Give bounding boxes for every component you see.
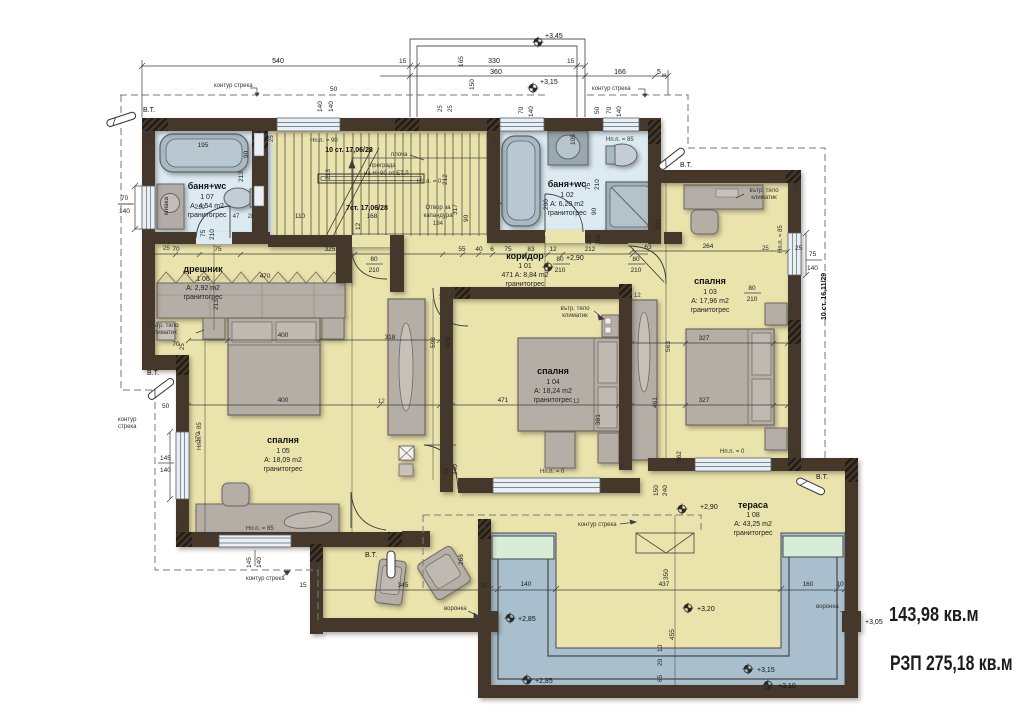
svg-text:стрека: стрека (118, 424, 137, 430)
svg-text:12: 12 (450, 293, 457, 299)
svg-text:75: 75 (809, 251, 817, 258)
svg-text:коридор: коридор (506, 251, 544, 261)
svg-text:20: 20 (657, 658, 664, 666)
svg-text:+3,45: +3,45 (545, 33, 563, 40)
svg-text:471 A: 8,84 m2: 471 A: 8,84 m2 (501, 272, 548, 279)
svg-text:преграда: преграда (370, 163, 396, 169)
svg-text:1 01: 1 01 (518, 263, 532, 270)
svg-text:A: 18,09 m2: A: 18,09 m2 (264, 457, 302, 464)
svg-text:+3,20: +3,20 (697, 606, 715, 613)
svg-text:25: 25 (794, 183, 800, 190)
svg-text:1 04: 1 04 (546, 379, 560, 386)
svg-text:150: 150 (469, 79, 476, 90)
svg-text:80: 80 (370, 256, 378, 263)
svg-text:55: 55 (458, 246, 466, 253)
svg-text:50: 50 (162, 403, 170, 410)
svg-text:гранитогрес: гранитогрес (734, 530, 773, 537)
svg-text:200: 200 (543, 199, 550, 210)
svg-text:220: 220 (195, 205, 206, 211)
svg-text:213: 213 (213, 299, 220, 310)
svg-text:контур стрека: контур стрека (592, 86, 631, 92)
svg-text:210: 210 (631, 267, 642, 274)
svg-text:12: 12 (573, 399, 580, 405)
svg-text:75: 75 (443, 467, 450, 475)
svg-text:Нп.п. = 0: Нп.п. = 0 (417, 179, 442, 185)
svg-text:140: 140 (616, 106, 623, 117)
svg-text:210: 210 (747, 296, 758, 303)
svg-text:75: 75 (214, 246, 222, 253)
svg-text:воронка: воронка (444, 606, 467, 612)
svg-text:гранитогрес: гранитогрес (264, 466, 303, 473)
svg-text:+2,85: +2,85 (535, 678, 553, 685)
svg-text:25: 25 (438, 105, 444, 112)
svg-text:28: 28 (248, 214, 255, 220)
svg-text:429: 429 (445, 337, 452, 348)
svg-text:12: 12 (355, 222, 362, 230)
svg-text:25: 25 (792, 451, 799, 457)
svg-text:45: 45 (482, 523, 488, 530)
svg-text:25: 25 (180, 343, 186, 350)
svg-text:12: 12 (378, 399, 385, 405)
svg-text:1 02: 1 02 (560, 192, 574, 199)
svg-text:+2,85: +2,85 (518, 616, 536, 623)
svg-text:баня+wc: баня+wc (188, 181, 227, 191)
svg-text:168: 168 (367, 213, 378, 220)
svg-text:330: 330 (488, 58, 500, 65)
svg-text:598: 598 (430, 337, 437, 348)
svg-text:461: 461 (652, 397, 659, 408)
svg-text:вътр. тяло: вътр. тяло (749, 188, 779, 194)
svg-text:Нп.п. = 85: Нп.п. = 85 (778, 225, 784, 253)
svg-text:195: 195 (198, 142, 209, 149)
svg-text:75: 75 (504, 246, 512, 253)
svg-text:дрешник: дрешник (183, 264, 223, 274)
svg-text:470: 470 (260, 273, 271, 280)
svg-text:160: 160 (803, 581, 814, 588)
svg-text:15: 15 (567, 58, 575, 65)
svg-text:плоча: плоча (391, 152, 408, 158)
svg-text:105: 105 (570, 134, 577, 145)
svg-text:A: 18,24 m2: A: 18,24 m2 (534, 388, 572, 395)
svg-text:A: 6,20 m2: A: 6,20 m2 (550, 201, 584, 208)
svg-text:1 05: 1 05 (276, 448, 290, 455)
svg-text:Нп.п. = 0: Нп.п. = 0 (540, 469, 565, 475)
svg-text:90: 90 (591, 207, 598, 215)
svg-text:212: 212 (585, 246, 596, 253)
svg-text:вътр. тяло: вътр. тяло (149, 323, 179, 329)
svg-text:83: 83 (527, 246, 535, 253)
svg-text:70: 70 (606, 106, 613, 114)
svg-text:В.Т.: В.Т. (147, 370, 159, 377)
svg-text:266: 266 (458, 554, 465, 565)
svg-text:Нп.п. = 85: Нп.п. = 85 (606, 137, 634, 143)
svg-text:165: 165 (458, 56, 465, 67)
svg-text:+2,90: +2,90 (566, 255, 584, 262)
svg-text:тераса: тераса (738, 500, 769, 510)
svg-text:400: 400 (278, 332, 289, 339)
svg-text:+3,15: +3,15 (540, 79, 558, 86)
svg-text:140: 140 (528, 106, 535, 117)
svg-text:гранитогрес: гранитогрес (506, 281, 545, 288)
svg-text:25: 25 (762, 246, 769, 252)
svg-text:47: 47 (233, 214, 240, 220)
svg-text:В.Т.: В.Т. (365, 552, 377, 559)
svg-text:гранитогрес: гранитогрес (188, 212, 227, 219)
svg-text:400: 400 (278, 397, 289, 404)
svg-text:контур стрека: контур стрека (246, 576, 285, 582)
svg-text:140: 140 (328, 101, 335, 112)
svg-text:+3,15: +3,15 (757, 667, 775, 674)
svg-text:102: 102 (655, 219, 662, 230)
svg-text:140: 140 (521, 581, 532, 588)
svg-text:контур стрека: контур стрека (214, 83, 253, 89)
svg-text:Нп.п. = 85: Нп.п. = 85 (197, 422, 203, 450)
svg-text:143,98 кв.м: 143,98 кв.м (889, 602, 979, 625)
svg-text:5: 5 (657, 69, 661, 76)
svg-text:25: 25 (146, 133, 152, 140)
svg-text:317: 317 (452, 204, 459, 215)
svg-text:10 ст. 17,06/28: 10 ст. 17,06/28 (325, 147, 373, 154)
svg-text:вътр. тяло: вътр. тяло (560, 306, 590, 312)
svg-text:гранитогрес: гранитогрес (548, 210, 587, 217)
svg-text:+3,05: +3,05 (865, 619, 883, 626)
svg-text:90: 90 (243, 150, 250, 158)
svg-text:381: 381 (595, 414, 602, 425)
svg-text:455: 455 (669, 629, 676, 640)
svg-text:210: 210 (209, 229, 216, 240)
svg-text:Нп.п. = 0: Нп.п. = 0 (720, 449, 745, 455)
svg-text:210: 210 (555, 267, 566, 274)
svg-text:контур: контур (118, 417, 137, 423)
svg-text:145: 145 (246, 557, 253, 568)
svg-text:80: 80 (632, 256, 640, 263)
svg-text:70: 70 (172, 246, 180, 253)
svg-text:45: 45 (620, 463, 626, 470)
svg-text:437: 437 (659, 581, 670, 588)
svg-text:спалня: спалня (267, 435, 299, 445)
svg-text:212: 212 (442, 174, 449, 185)
svg-text:гранитогрес: гранитогрес (691, 307, 730, 314)
svg-text:345: 345 (398, 582, 409, 589)
svg-text:90: 90 (463, 214, 470, 222)
svg-text:A: 2,92 m2: A: 2,92 m2 (186, 285, 220, 292)
svg-text:360: 360 (490, 69, 502, 76)
svg-text:мивка: мивка (163, 196, 170, 215)
svg-text:гранитогрес: гранитогрес (534, 397, 573, 404)
svg-text:10: 10 (657, 644, 664, 652)
svg-text:15: 15 (299, 582, 307, 589)
svg-text:12: 12 (440, 293, 446, 300)
svg-text:362: 362 (676, 451, 683, 462)
svg-text:63: 63 (644, 244, 652, 251)
svg-text:+2,90: +2,90 (700, 504, 718, 511)
svg-text:Нп.п. = 85: Нп.п. = 85 (246, 526, 274, 532)
svg-text:563: 563 (665, 341, 672, 352)
svg-text:50: 50 (594, 106, 601, 114)
svg-text:6: 6 (490, 246, 494, 253)
svg-text:на Н=90 от ЕТ.Л: на Н=90 от ЕТ.Л (364, 171, 409, 177)
svg-text:Отвор за: Отвор за (426, 205, 452, 211)
svg-text:25: 25 (448, 105, 454, 112)
svg-text:240: 240 (662, 485, 669, 496)
svg-text:климатик: климатик (562, 313, 588, 319)
svg-text:25: 25 (269, 135, 275, 142)
svg-text:климатик: климатик (751, 195, 777, 201)
svg-text:1 07: 1 07 (200, 194, 214, 201)
svg-text:Нп.п. = 90: Нп.п. = 90 (310, 138, 338, 144)
svg-text:150: 150 (653, 485, 660, 496)
svg-text:12: 12 (549, 246, 557, 253)
svg-text:350: 350 (663, 569, 670, 580)
svg-text:213: 213 (238, 171, 245, 182)
svg-text:40: 40 (475, 246, 483, 253)
svg-text:12: 12 (634, 293, 641, 299)
svg-text:140: 140 (119, 208, 130, 215)
svg-text:140: 140 (160, 467, 171, 474)
svg-text:A: 43,25 m2: A: 43,25 m2 (734, 521, 772, 528)
svg-text:140: 140 (256, 557, 263, 568)
svg-text:102: 102 (595, 234, 602, 245)
svg-text:80: 80 (556, 256, 564, 263)
svg-text:70: 70 (121, 195, 129, 202)
svg-text:140: 140 (317, 101, 324, 112)
svg-text:540: 540 (272, 58, 284, 65)
svg-text:баня+wc: баня+wc (548, 179, 587, 189)
svg-text:110: 110 (295, 213, 306, 220)
svg-text:70: 70 (172, 341, 180, 348)
svg-text:25: 25 (492, 135, 498, 142)
svg-text:75: 75 (200, 229, 207, 237)
svg-text:210: 210 (369, 267, 380, 274)
svg-text:25: 25 (655, 133, 661, 140)
svg-text:10 ст. 16,11/29: 10 ст. 16,11/29 (821, 273, 828, 320)
svg-text:184: 184 (433, 221, 444, 227)
svg-text:102: 102 (586, 234, 593, 245)
svg-text:327: 327 (699, 335, 710, 342)
svg-text:контур стрека: контур стрека (578, 522, 617, 528)
svg-text:210: 210 (594, 179, 601, 190)
svg-text:213: 213 (325, 169, 332, 180)
svg-text:15: 15 (399, 58, 407, 65)
svg-text:1 06: 1 06 (196, 276, 210, 283)
svg-text:240: 240 (452, 464, 459, 475)
svg-text:В.Т.: В.Т. (816, 474, 828, 481)
svg-text:70: 70 (518, 106, 525, 114)
svg-text:318: 318 (385, 334, 396, 341)
svg-text:75: 75 (585, 182, 592, 190)
svg-text:воронка: воронка (816, 604, 839, 610)
svg-text:65: 65 (657, 674, 664, 682)
svg-text:7ст. 17,06/28: 7ст. 17,06/28 (346, 205, 388, 212)
svg-text:10: 10 (836, 581, 844, 588)
svg-text:25: 25 (163, 246, 170, 252)
svg-text:спалня: спалня (537, 366, 569, 376)
svg-text:м: м (662, 73, 666, 79)
svg-text:25: 25 (795, 245, 803, 252)
svg-text:166: 166 (614, 69, 626, 76)
svg-text:+3,10: +3,10 (778, 683, 796, 690)
svg-text:спалня: спалня (694, 276, 726, 286)
svg-text:80: 80 (748, 285, 756, 292)
svg-text:РЗП 275,18 кв.м: РЗП 275,18 кв.м (890, 651, 1013, 675)
svg-text:327: 327 (699, 397, 710, 404)
svg-text:10: 10 (480, 582, 488, 589)
svg-text:25: 25 (180, 518, 186, 525)
svg-text:капандура: капандура (423, 213, 453, 219)
svg-text:климатик: климатик (151, 330, 177, 336)
svg-text:140: 140 (807, 265, 818, 272)
svg-text:50: 50 (330, 86, 338, 93)
svg-text:В.Т.: В.Т. (143, 107, 155, 114)
svg-text:A: 17,96 m2: A: 17,96 m2 (691, 298, 729, 305)
svg-text:264: 264 (703, 243, 714, 250)
svg-text:325: 325 (325, 246, 336, 253)
svg-text:1 03: 1 03 (703, 289, 717, 296)
svg-text:471: 471 (498, 397, 509, 404)
svg-text:145: 145 (160, 455, 171, 462)
svg-text:1 08: 1 08 (746, 512, 760, 519)
svg-text:В.Т.: В.Т. (680, 162, 692, 169)
